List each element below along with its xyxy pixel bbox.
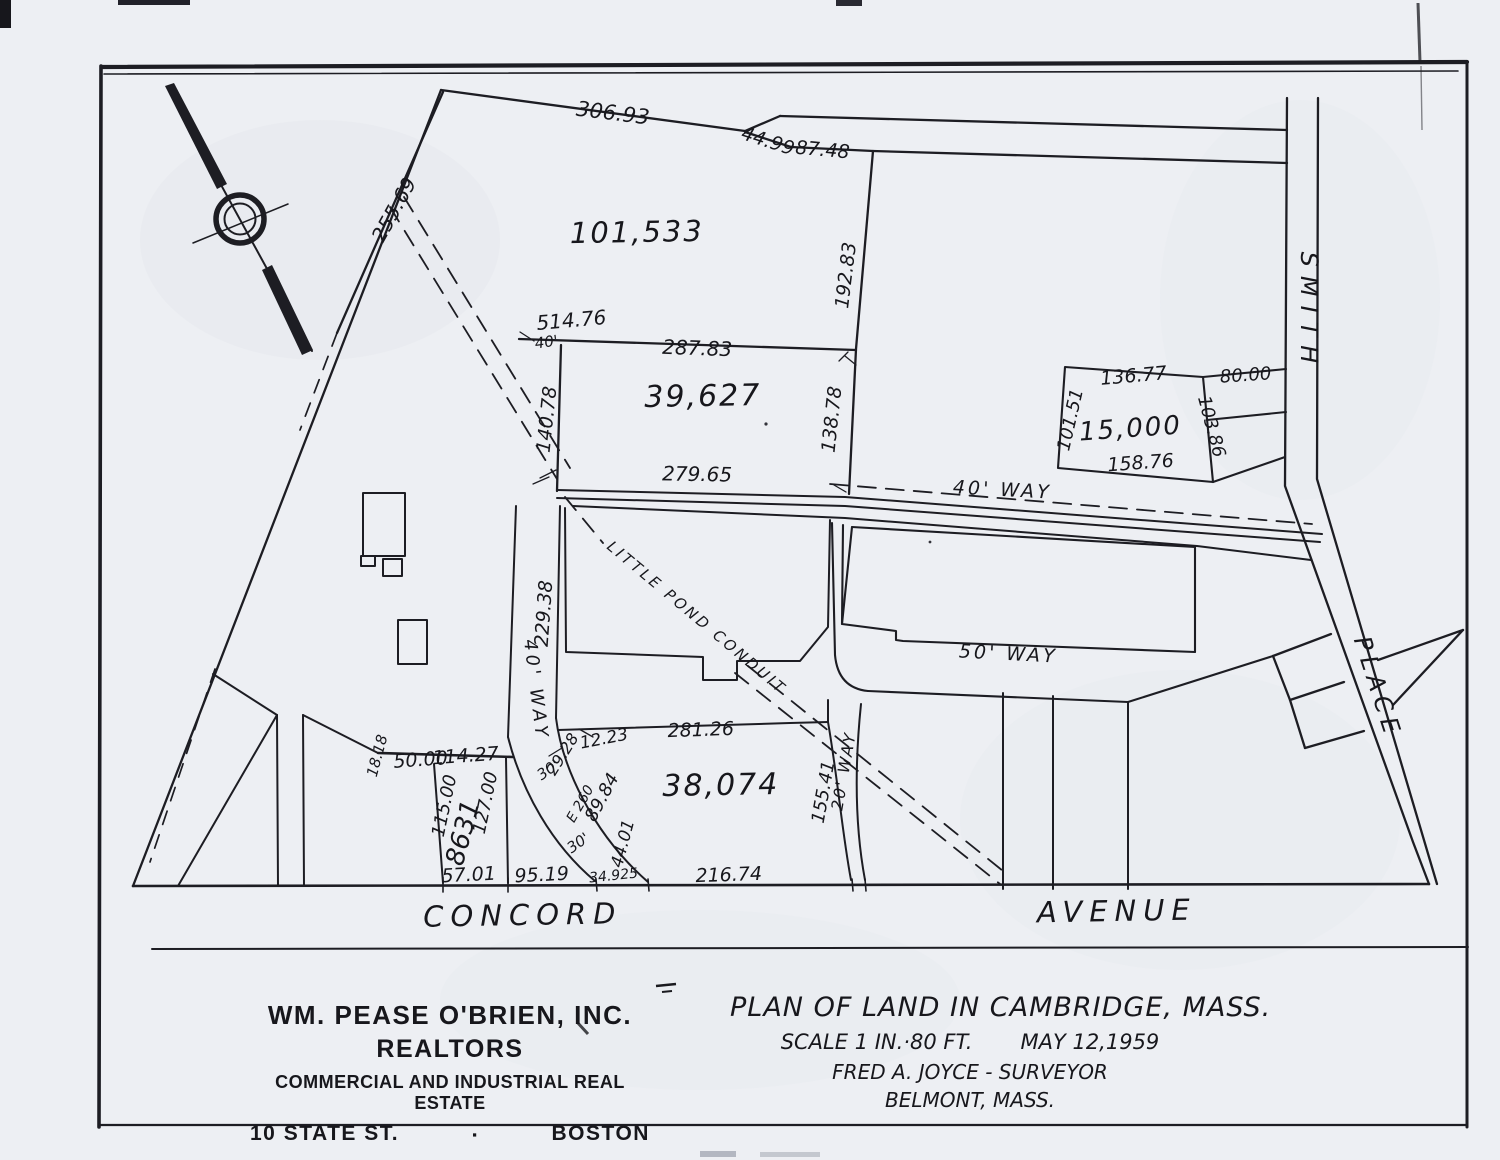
plan-date: MAY 12,1959 — [1020, 1030, 1159, 1054]
plan-scale: SCALE 1 IN.·80 FT. — [781, 1030, 973, 1054]
square-bullet-icon: ▪ — [472, 1127, 478, 1142]
surveyor-name: FRED A. JOYCE - SURVEYOR — [730, 1060, 1210, 1084]
dim-80-00: 80.00 — [1219, 363, 1272, 388]
firm-role: REALTORS — [240, 1035, 660, 1064]
dim-287-83: 287.83 — [662, 335, 733, 361]
area-39627: 39,627 — [644, 378, 762, 415]
street-avenue: AVENUE — [1035, 893, 1197, 930]
survey-plan-sheet: 306.93 44.99 87.48 255.69 101,533 192.83… — [0, 0, 1500, 1160]
dim-114-27: 114.27 — [432, 743, 500, 770]
dim-281-26: 281.26 — [667, 718, 734, 742]
street-concord: CONCORD — [423, 896, 623, 933]
dim-57-01: 57.01 — [441, 863, 496, 888]
firm-block: WM. PEASE O'BRIEN, INC. REALTORS COMMERC… — [240, 1000, 660, 1146]
dim-158-76: 158.76 — [1107, 450, 1175, 477]
firm-address: 10 STATE ST. — [250, 1122, 399, 1146]
scale-date-row: SCALE 1 IN.·80 FT. MAY 12,1959 — [730, 1030, 1210, 1054]
area-38074: 38,074 — [662, 767, 780, 804]
plan-drawing: 306.93 44.99 87.48 255.69 101,533 192.83… — [0, 0, 1500, 1160]
firm-name: WM. PEASE O'BRIEN, INC. — [240, 1000, 660, 1031]
title-block: PLAN OF LAND IN CAMBRIDGE, MASS. SCALE 1… — [730, 992, 1210, 1112]
dim-279-65: 279.65 — [662, 461, 732, 486]
dim-95-19: 95.19 — [514, 863, 569, 888]
plan-title: PLAN OF LAND IN CAMBRIDGE, MASS. — [730, 992, 1210, 1023]
firm-address-row: 10 STATE ST. ▪ BOSTON — [250, 1122, 650, 1146]
way-width-40: 40' — [534, 332, 559, 353]
area-101533: 101,533 — [570, 214, 705, 250]
surveyor-town: BELMONT, MASS. — [730, 1088, 1210, 1112]
street-smith: SMITH — [1295, 252, 1323, 373]
firm-tagline: COMMERCIAL AND INDUSTRIAL REAL ESTATE — [240, 1072, 660, 1114]
dim-216-74: 216.74 — [695, 863, 762, 887]
firm-city: BOSTON — [552, 1122, 650, 1146]
dim-229-38: 229.38 — [531, 580, 558, 648]
